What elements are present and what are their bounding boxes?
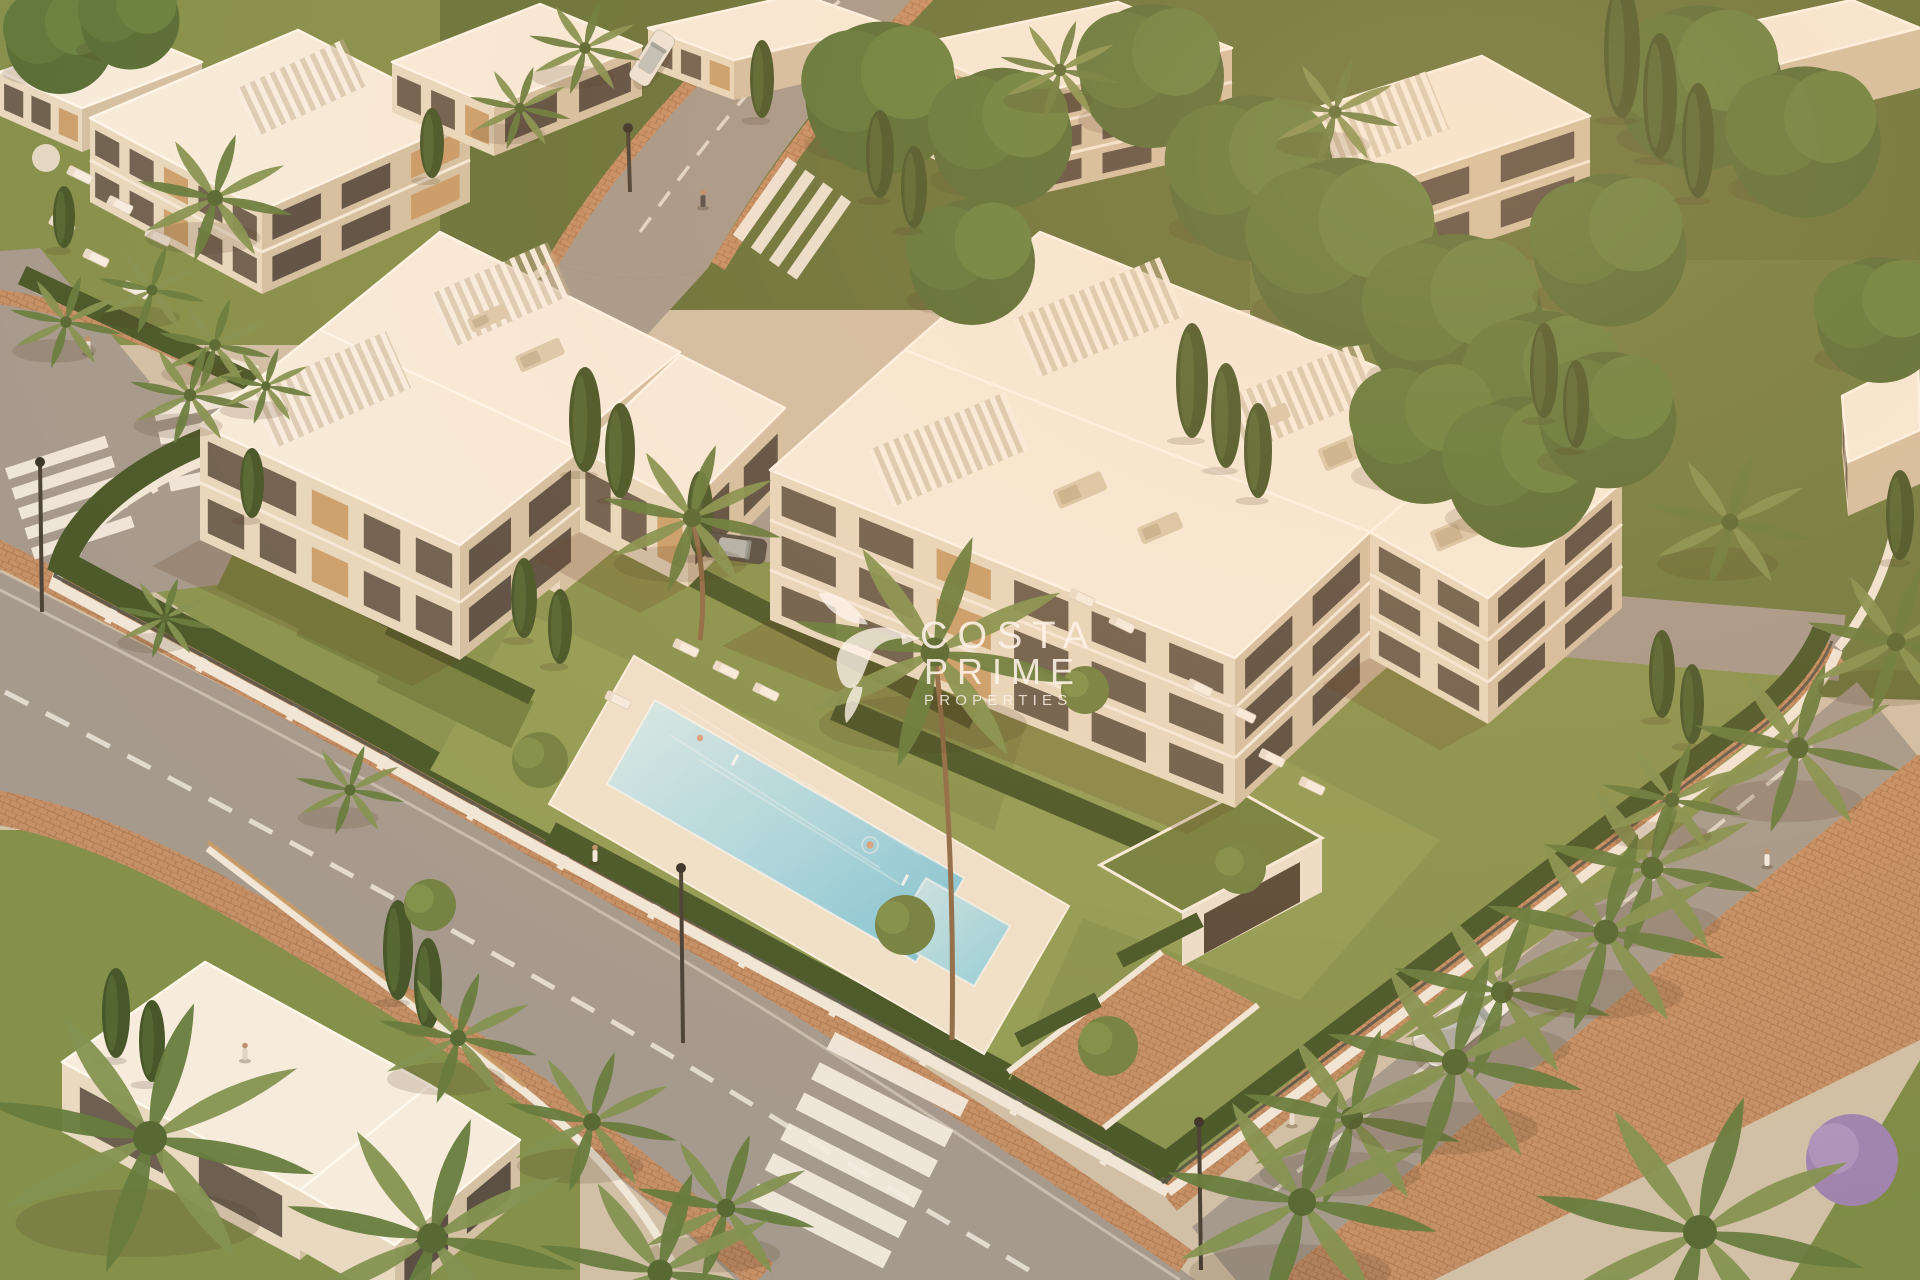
lighting bbox=[0, 0, 1920, 1280]
aerial-render: COSTA PRIME PROPERTIES bbox=[0, 0, 1920, 1280]
scene-svg: COSTA PRIME PROPERTIES bbox=[0, 0, 1920, 1280]
warm-tint bbox=[0, 0, 1920, 1280]
